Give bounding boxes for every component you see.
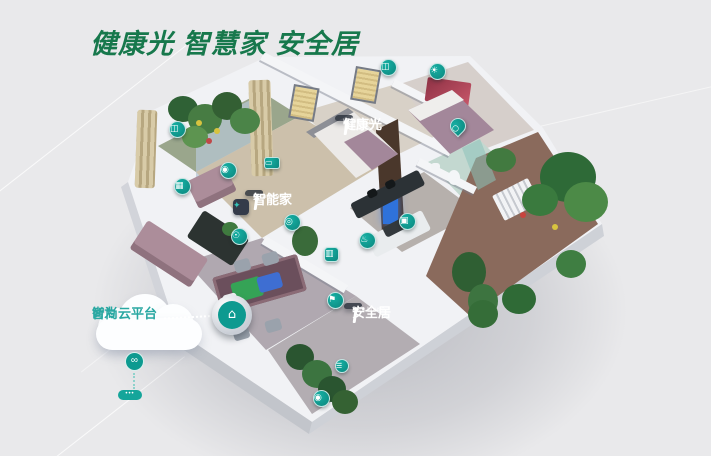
ceiling-light-icon[interactable]: ☀ — [429, 63, 446, 80]
speaker-icon[interactable]: ◎ — [284, 214, 301, 231]
balcony-plant — [230, 108, 260, 134]
flower — [214, 128, 220, 134]
terrace-plant — [502, 284, 536, 314]
smart-hub-badge[interactable]: ⌂ — [212, 295, 252, 335]
label-safe-house[interactable]: 安全居 Safe house — [344, 303, 363, 309]
curtain-left — [135, 110, 158, 189]
window-sensor-icon[interactable]: ▦ — [174, 178, 191, 195]
planter-bush — [332, 390, 358, 414]
cooker-icon[interactable]: ▣ — [399, 213, 416, 230]
garden-plant — [468, 300, 498, 328]
link-connector — [133, 373, 135, 389]
flower — [520, 212, 526, 218]
cloud-shape — [96, 318, 202, 350]
terrace-tree — [564, 182, 608, 222]
link-icon[interactable]: ∞ — [125, 352, 144, 371]
terrace-plant — [486, 148, 516, 172]
log-icon[interactable]: ☰ — [335, 359, 349, 373]
toilet — [448, 170, 460, 185]
potted-plant — [292, 226, 318, 256]
flower — [196, 120, 202, 126]
alarm-icon[interactable]: ⚑ — [327, 292, 344, 309]
curtain-icon[interactable]: ◫ — [380, 59, 397, 76]
terrace-plant — [556, 250, 586, 278]
gas-sensor-icon[interactable]: ♨ — [359, 232, 376, 249]
page-title: 健康光 智慧家 安全居 — [90, 22, 359, 61]
flower — [552, 224, 558, 230]
smart-home-promo-image: 健康光 智慧家 安全居 尚为 智尚云平台 ∞ ••• ⌂ 健康光 Health … — [0, 0, 711, 456]
smart-hub-icon: ⌂ — [218, 301, 246, 329]
blinds-icon[interactable]: ▥ — [324, 247, 339, 262]
label-smart-home[interactable]: 智能家 Smart home — [245, 190, 264, 196]
lamp-icon[interactable]: ☉ — [231, 228, 248, 245]
more-dots-badge: ••• — [118, 390, 142, 400]
label-health-light[interactable]: 健康光 Health light — [335, 115, 354, 121]
bath-sink — [431, 163, 440, 170]
presence-sensor-icon[interactable]: ◉ — [220, 162, 237, 179]
balcony-curtain-icon[interactable]: ◫ — [169, 121, 186, 138]
cloud-line2: 智尚云平台 — [92, 306, 157, 322]
door-camera-icon[interactable]: ◉ — [313, 390, 330, 407]
terrace-plant — [522, 184, 558, 216]
smart-panel-icon[interactable]: ✦ — [233, 199, 249, 215]
tv-icon[interactable]: ▭ — [264, 157, 280, 169]
flower — [206, 138, 212, 144]
